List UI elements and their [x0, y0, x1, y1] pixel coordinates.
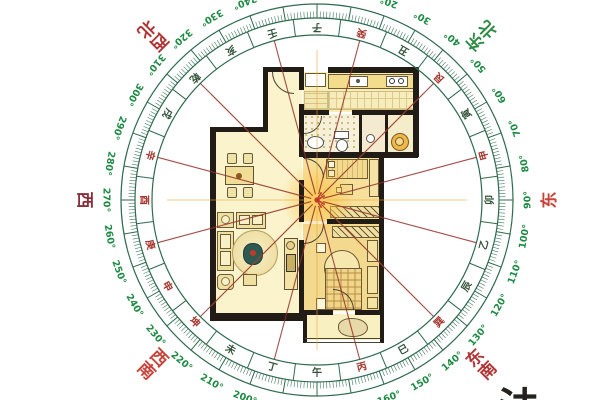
washing-machine-drum — [395, 137, 404, 146]
watermark-text: 法第四 — [498, 388, 600, 400]
shower-head — [366, 134, 375, 143]
feng-shui-floorplan-screenshot: 0°10°20°30°40°50°60°70°80°90°100°110°120… — [0, 0, 600, 400]
dining-chair-1 — [227, 153, 237, 164]
stove-burner-left — [389, 78, 395, 84]
wall-balcony-a — [303, 310, 333, 315]
armchair-bottom-cushion — [221, 277, 230, 286]
stove-burner-right — [398, 78, 404, 84]
wall-bath-shower-divider — [359, 113, 362, 154]
dining-chair-3 — [227, 187, 237, 198]
balcony-rock-garden — [338, 318, 368, 337]
nightstand-2 — [316, 298, 326, 310]
wall-corridor-a — [299, 72, 304, 90]
footstool — [243, 274, 257, 286]
nightstand-1 — [316, 243, 326, 253]
wardrobe-upper — [369, 159, 379, 197]
dresser-1 — [367, 240, 378, 262]
kitchen-floor-tiles — [328, 91, 414, 110]
dresser-2 — [367, 266, 378, 294]
wall-top-kitchen — [328, 67, 418, 73]
floor-plan — [0, 0, 600, 400]
sofa-left-cushion-1 — [220, 234, 231, 249]
balcony-window — [305, 338, 381, 343]
shower-room — [361, 114, 387, 154]
dresser-3 — [367, 297, 378, 309]
coffee-table-flower — [250, 250, 256, 256]
wall-right-bedrooms — [379, 157, 384, 315]
sofa-top-cushion-2 — [252, 215, 263, 225]
dining-table-centerpiece — [236, 173, 242, 179]
wall-kitchen-bath-a — [303, 110, 329, 115]
wall-bottom-living — [210, 313, 305, 321]
sink-faucet — [356, 79, 360, 83]
hall-steps — [304, 91, 328, 110]
wall-inset-vertical — [263, 67, 268, 132]
armchair-top-cushion — [221, 215, 230, 224]
dining-chair-4 — [243, 187, 253, 198]
fridge — [305, 73, 326, 87]
tv — [286, 254, 296, 272]
toilet-bowl — [336, 139, 348, 152]
wall-inset-top — [210, 127, 268, 132]
wash-basin — [307, 136, 324, 149]
wall-bedroom-west — [299, 180, 304, 222]
toilet-tank — [334, 131, 349, 139]
wall-living-east — [299, 240, 304, 315]
wall-shower-utility-divider — [385, 113, 388, 154]
wall-left-exterior — [210, 127, 216, 321]
wall-bedroom-divider — [327, 219, 384, 224]
sofa-left-cushion-2 — [220, 251, 231, 266]
tv-plant-pot — [286, 241, 295, 250]
sofa-top-cushion-1 — [239, 215, 250, 225]
dining-chair-2 — [243, 153, 253, 164]
